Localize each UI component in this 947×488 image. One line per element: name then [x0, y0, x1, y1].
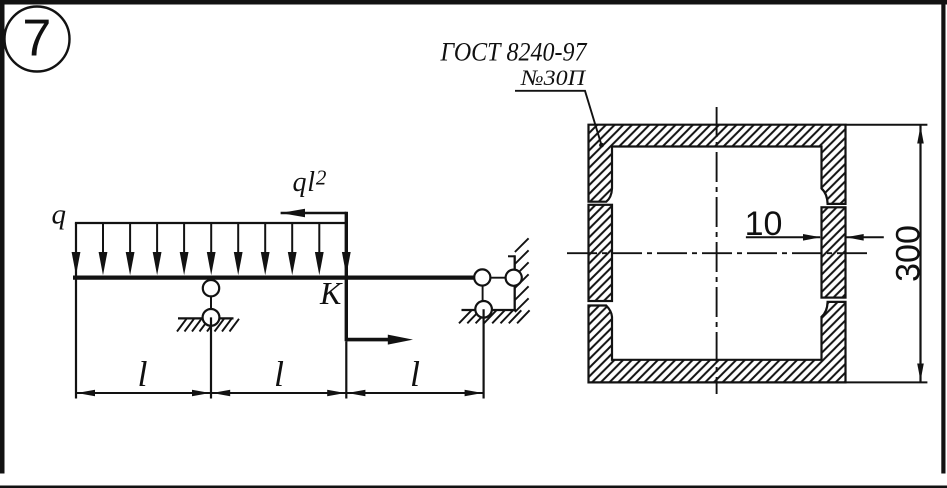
svg-text:K: K: [319, 275, 343, 311]
svg-text:q: q: [52, 199, 67, 231]
svg-text:10: 10: [745, 205, 783, 243]
svg-text:ql2: ql2: [293, 166, 328, 199]
svg-text:300: 300: [890, 225, 928, 282]
svg-text:l: l: [137, 354, 147, 394]
svg-text:ГОСТ 8240-97: ГОСТ 8240-97: [440, 38, 588, 67]
svg-text:№30П: №30П: [520, 65, 586, 90]
svg-text:l: l: [410, 354, 420, 394]
svg-text:7: 7: [22, 10, 51, 68]
svg-text:l: l: [274, 354, 284, 394]
